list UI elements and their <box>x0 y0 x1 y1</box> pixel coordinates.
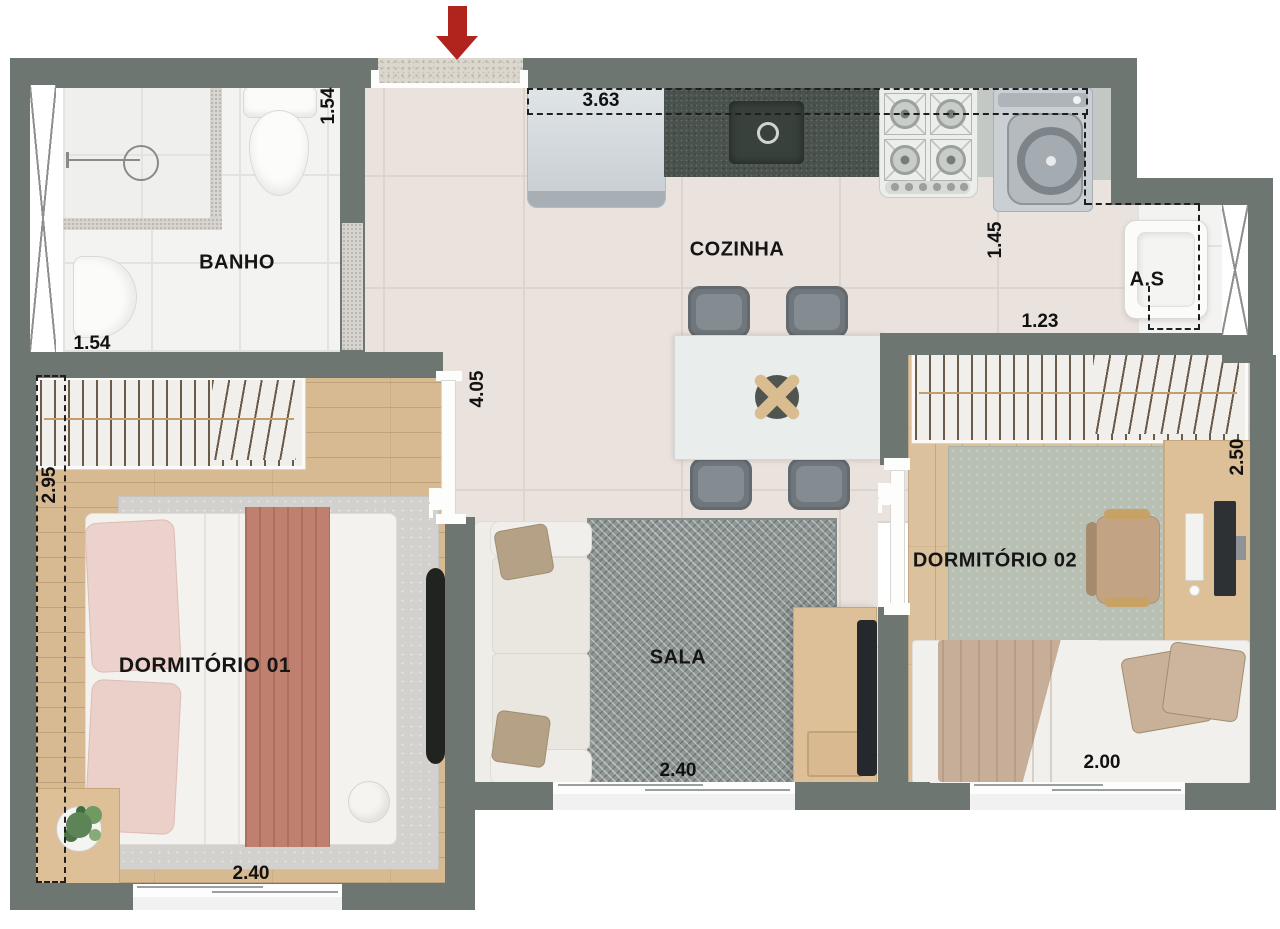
dim-sala-bottom: 2.40 <box>660 760 697 782</box>
bedroom1-window-sill <box>133 897 342 910</box>
bedroom2-right-wall <box>1250 355 1276 810</box>
sala-window-sill <box>553 794 795 810</box>
entrance-threshold <box>378 83 523 88</box>
bathroom-pocket-door <box>342 223 363 350</box>
room-label-sala: SALA <box>650 647 706 670</box>
dim-dorm1-bottom: 2.40 <box>233 863 270 885</box>
bedroom1-door-handle <box>430 488 442 510</box>
dim-dorm1-side: 2.95 <box>39 467 61 504</box>
floor-plan: BANHO COZINHA A.S DORMITÓRIO 01 SALA DOR… <box>0 0 1280 929</box>
plant-leaves-icon <box>66 812 92 838</box>
dim-dorm2-bottom: 2.00 <box>1084 752 1121 774</box>
dim-banho-side: 1.54 <box>318 88 340 125</box>
room-label-dormitorio2: DORMITÓRIO 02 <box>913 550 1077 573</box>
top-wall-right <box>523 58 1137 88</box>
dining-chair <box>690 458 752 510</box>
washer-drum-ring <box>1017 127 1085 195</box>
sofa-pillow <box>491 709 552 768</box>
bedroom1-wardrobe <box>37 377 305 469</box>
bedroom2-door <box>890 470 905 607</box>
bedroom2-doorframe <box>884 458 910 470</box>
bedroom2-door-handle <box>879 483 891 505</box>
bedroom1-tv <box>426 568 445 764</box>
dim-washer: 1.45 <box>985 222 1007 259</box>
bedroom1-top-wall <box>365 352 443 378</box>
shower-border-bottom <box>63 218 222 230</box>
bathroom-window <box>30 85 56 352</box>
laundry-bottom-wall <box>880 333 1273 355</box>
burner-icon <box>884 139 926 181</box>
dim-banho-bottom: 1.54 <box>74 333 111 355</box>
dim-hall: 4.05 <box>467 371 489 408</box>
shower-arm <box>66 159 140 161</box>
toilet-bowl <box>249 110 309 196</box>
mouse-icon <box>1189 585 1200 596</box>
dim-line-as-bottom <box>1148 328 1200 330</box>
dining-chair <box>786 286 848 338</box>
monitor-stand <box>1236 536 1246 560</box>
faucet-icon <box>757 122 779 144</box>
entrance-jamb <box>520 70 528 88</box>
bedroom1-bed <box>85 513 395 843</box>
dim-line-as-top <box>1086 203 1200 205</box>
sofa-pillow <box>493 523 555 582</box>
bed2-pillow <box>1161 641 1246 723</box>
dim-line-as-right <box>1198 205 1200 330</box>
bedroom1-door <box>441 380 456 520</box>
sala-window <box>553 782 795 794</box>
dim-kitchen-counter: 3.63 <box>583 90 620 112</box>
bedroom2-left-wall-lower <box>878 607 908 783</box>
bedroom1-sala-wall <box>445 517 475 910</box>
sofa <box>472 521 590 783</box>
bedroom2-bed <box>908 636 1252 786</box>
dim-line-bedroom1 <box>36 375 66 883</box>
bedroom2-window-sill <box>970 794 1185 810</box>
fridge-handle <box>528 191 665 207</box>
shower-valve <box>66 152 69 168</box>
monitor-icon <box>1214 501 1236 596</box>
bedroom2-window <box>970 782 1185 794</box>
sala-tv <box>857 620 877 776</box>
table-centerpiece <box>752 372 802 422</box>
desk-chair <box>1086 509 1158 607</box>
shower-border-right <box>210 85 222 230</box>
entrance-mat <box>378 58 523 85</box>
burner-icon <box>930 139 972 181</box>
pillow-pink <box>84 519 182 674</box>
bedroom1-doorframe <box>436 514 466 524</box>
shower-head-icon <box>123 145 159 181</box>
bed2-blanket-folds <box>942 640 1052 782</box>
bedroom1-window <box>133 884 342 897</box>
yarn-ball <box>348 781 390 823</box>
dim-service: 1.23 <box>1022 311 1059 333</box>
dining-chair <box>788 458 850 510</box>
room-label-cozinha: COZINHA <box>690 239 785 262</box>
room-label-banho: BANHO <box>199 252 275 275</box>
bedroom2-left-wall-upper <box>880 355 908 465</box>
room-label-dormitorio1: DORMITÓRIO 01 <box>119 654 291 678</box>
dim-dorm2-side: 2.50 <box>1227 439 1249 476</box>
bedroom2-wardrobe <box>912 352 1248 443</box>
kitchen-right-wall <box>1111 88 1137 180</box>
dim-line-as-left <box>1148 286 1150 330</box>
stove-controls <box>885 181 970 194</box>
room-label-as: A.S <box>1130 269 1165 292</box>
washer-drum <box>1007 113 1083 205</box>
toilet <box>243 86 315 196</box>
dim-line-washer <box>1084 113 1086 205</box>
bedroom2-doorframe <box>884 603 910 615</box>
entrance-arrow-icon <box>436 6 479 58</box>
entrance-jamb <box>371 70 379 88</box>
laundry-window <box>1222 205 1248 335</box>
top-wall-left <box>10 58 378 88</box>
dining-chair <box>688 286 750 338</box>
keyboard-icon <box>1185 513 1204 581</box>
